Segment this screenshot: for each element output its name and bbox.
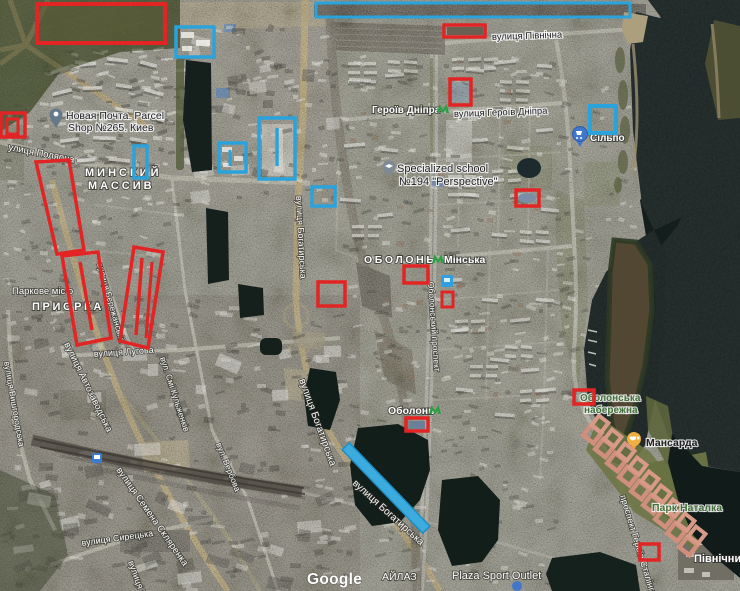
svg-text:Парк Наталка: Парк Наталка — [652, 502, 722, 514]
svg-text:Оболонь: Оболонь — [388, 405, 435, 417]
svg-text:Оболонська: Оболонська — [580, 392, 641, 404]
svg-text:МИНСКИЙ: МИНСКИЙ — [85, 166, 161, 179]
svg-text:Plaza Sport Outlet: Plaza Sport Outlet — [452, 570, 541, 582]
svg-text:Google: Google — [307, 571, 362, 588]
svg-text:Північний: Північний — [694, 553, 740, 565]
svg-text:Героїв Дніпра: Героїв Дніпра — [372, 105, 441, 116]
svg-text:Паркове міс о: Паркове міс о — [12, 286, 73, 297]
svg-text:Новая Почта. Parcel: Новая Почта. Parcel — [66, 110, 164, 122]
svg-text:№194 "Perspective": №194 "Perspective" — [399, 176, 498, 188]
svg-text:Shop №265. Киев: Shop №265. Киев — [68, 122, 154, 134]
svg-text:ПРИОРКА: ПРИОРКА — [32, 301, 104, 313]
svg-text:ОБОЛОНЬ: ОБОЛОНЬ — [364, 254, 436, 266]
svg-text:Мінська: Мінська — [444, 254, 486, 266]
svg-text:МАССИВ: МАССИВ — [88, 180, 155, 192]
svg-text:Мансарда: Мансарда — [646, 437, 698, 449]
svg-text:АЙЛАЗ: АЙЛАЗ — [382, 570, 417, 583]
svg-text:Specialized school: Specialized school — [397, 163, 488, 175]
svg-text:набережна: набережна — [584, 404, 638, 416]
